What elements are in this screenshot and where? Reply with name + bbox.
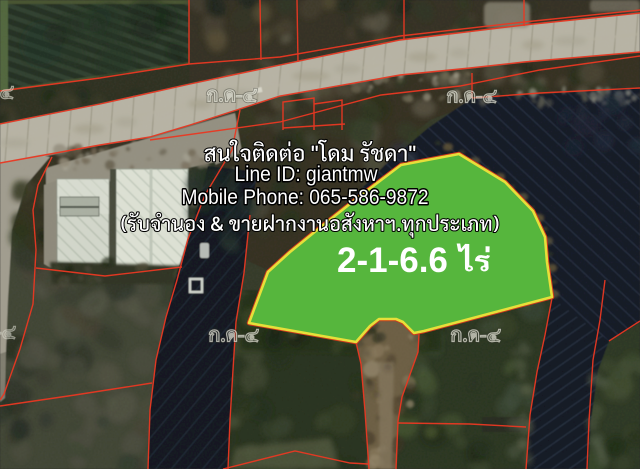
svg-text:2-1-6.6: 2-1-6.6 xyxy=(337,241,448,280)
svg-text:Line ID: giantmw: Line ID: giantmw xyxy=(235,163,379,186)
svg-text:Mobile Phone: 065-586-9872: Mobile Phone: 065-586-9872 xyxy=(182,186,429,209)
